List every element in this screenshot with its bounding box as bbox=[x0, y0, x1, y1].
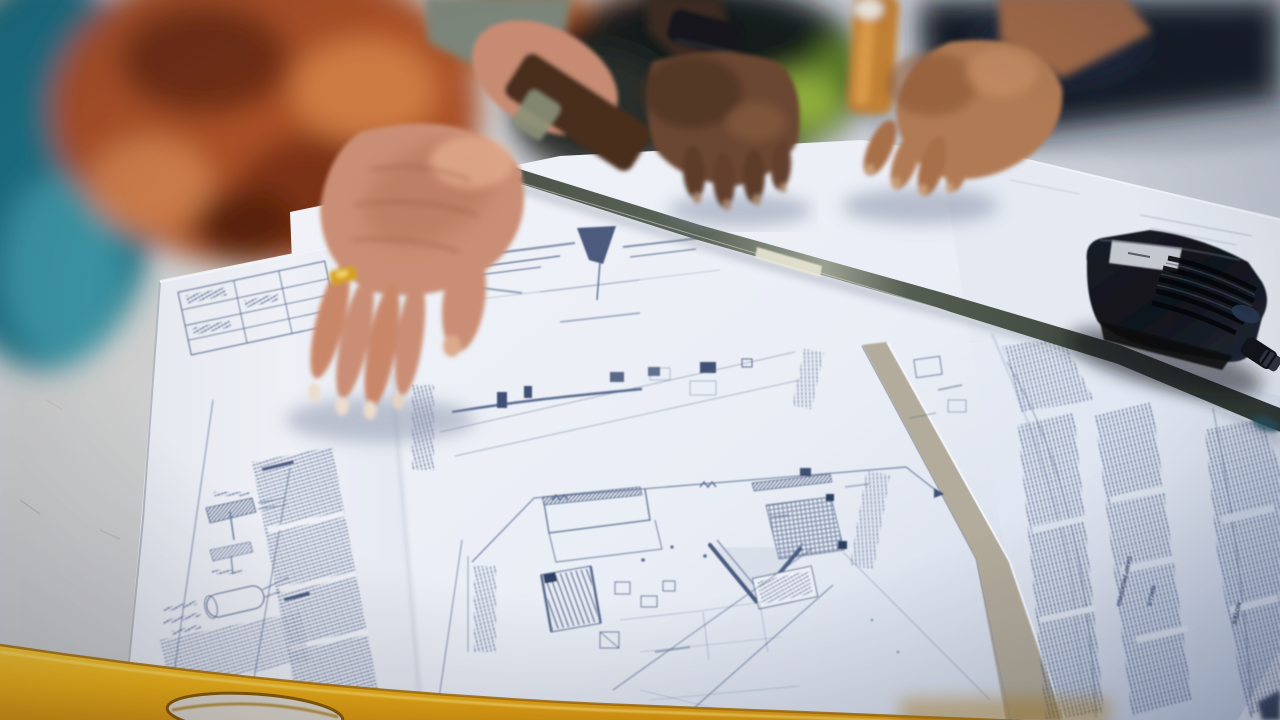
vignette-overlay bbox=[0, 0, 1280, 720]
photo-construction-blueprints: DAMP PROOFING WALLS NOTES bbox=[0, 0, 1280, 720]
photo-canvas: DAMP PROOFING WALLS NOTES bbox=[0, 0, 1280, 720]
